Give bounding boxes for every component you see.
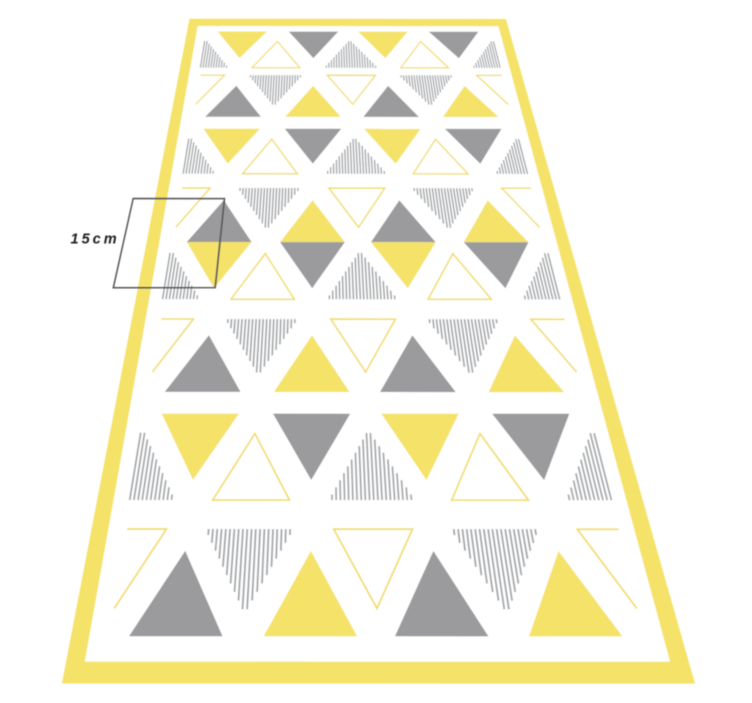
svg-text:15cm: 15cm xyxy=(71,232,120,248)
